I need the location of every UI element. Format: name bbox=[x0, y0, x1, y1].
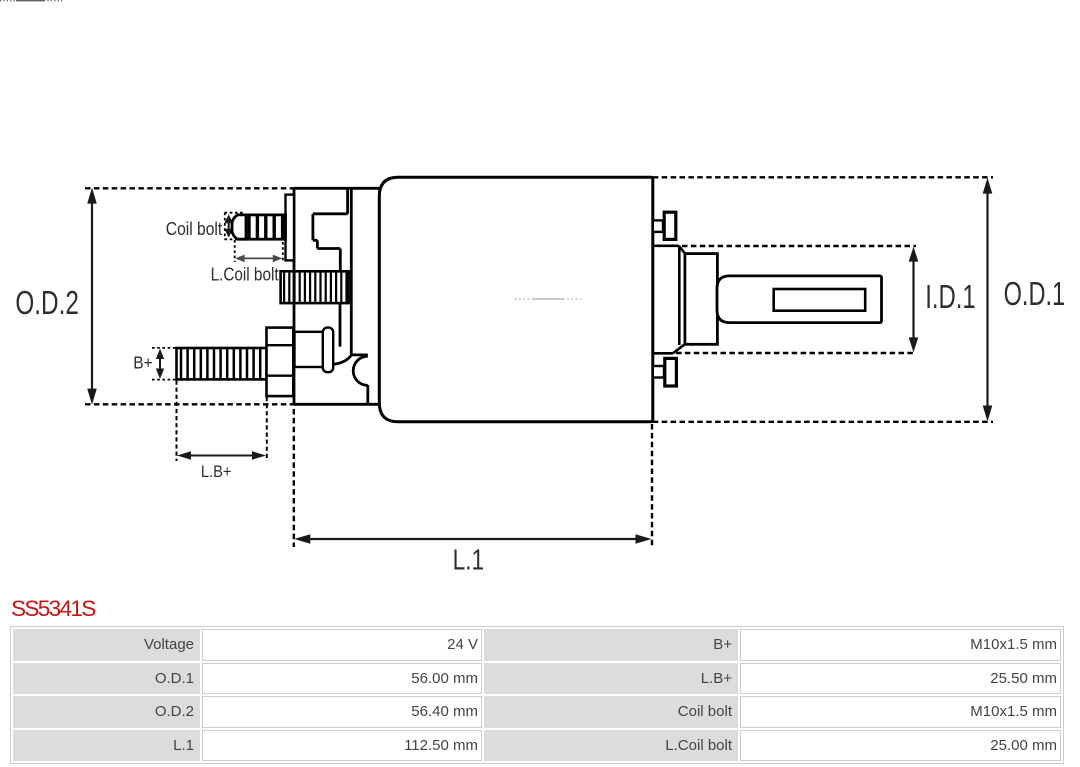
svg-text:L.Coil bolt: L.Coil bolt bbox=[211, 265, 279, 285]
svg-text:L.1: L.1 bbox=[453, 545, 485, 577]
svg-text:L.B+: L.B+ bbox=[201, 462, 232, 481]
svg-text:O.D.2: O.D.2 bbox=[15, 284, 79, 321]
svg-text:I.D.1: I.D.1 bbox=[925, 278, 976, 315]
svg-text:O.D.1: O.D.1 bbox=[1004, 275, 1066, 312]
svg-text:Coil bolt: Coil bolt bbox=[166, 219, 222, 239]
svg-text:B+: B+ bbox=[133, 352, 153, 372]
